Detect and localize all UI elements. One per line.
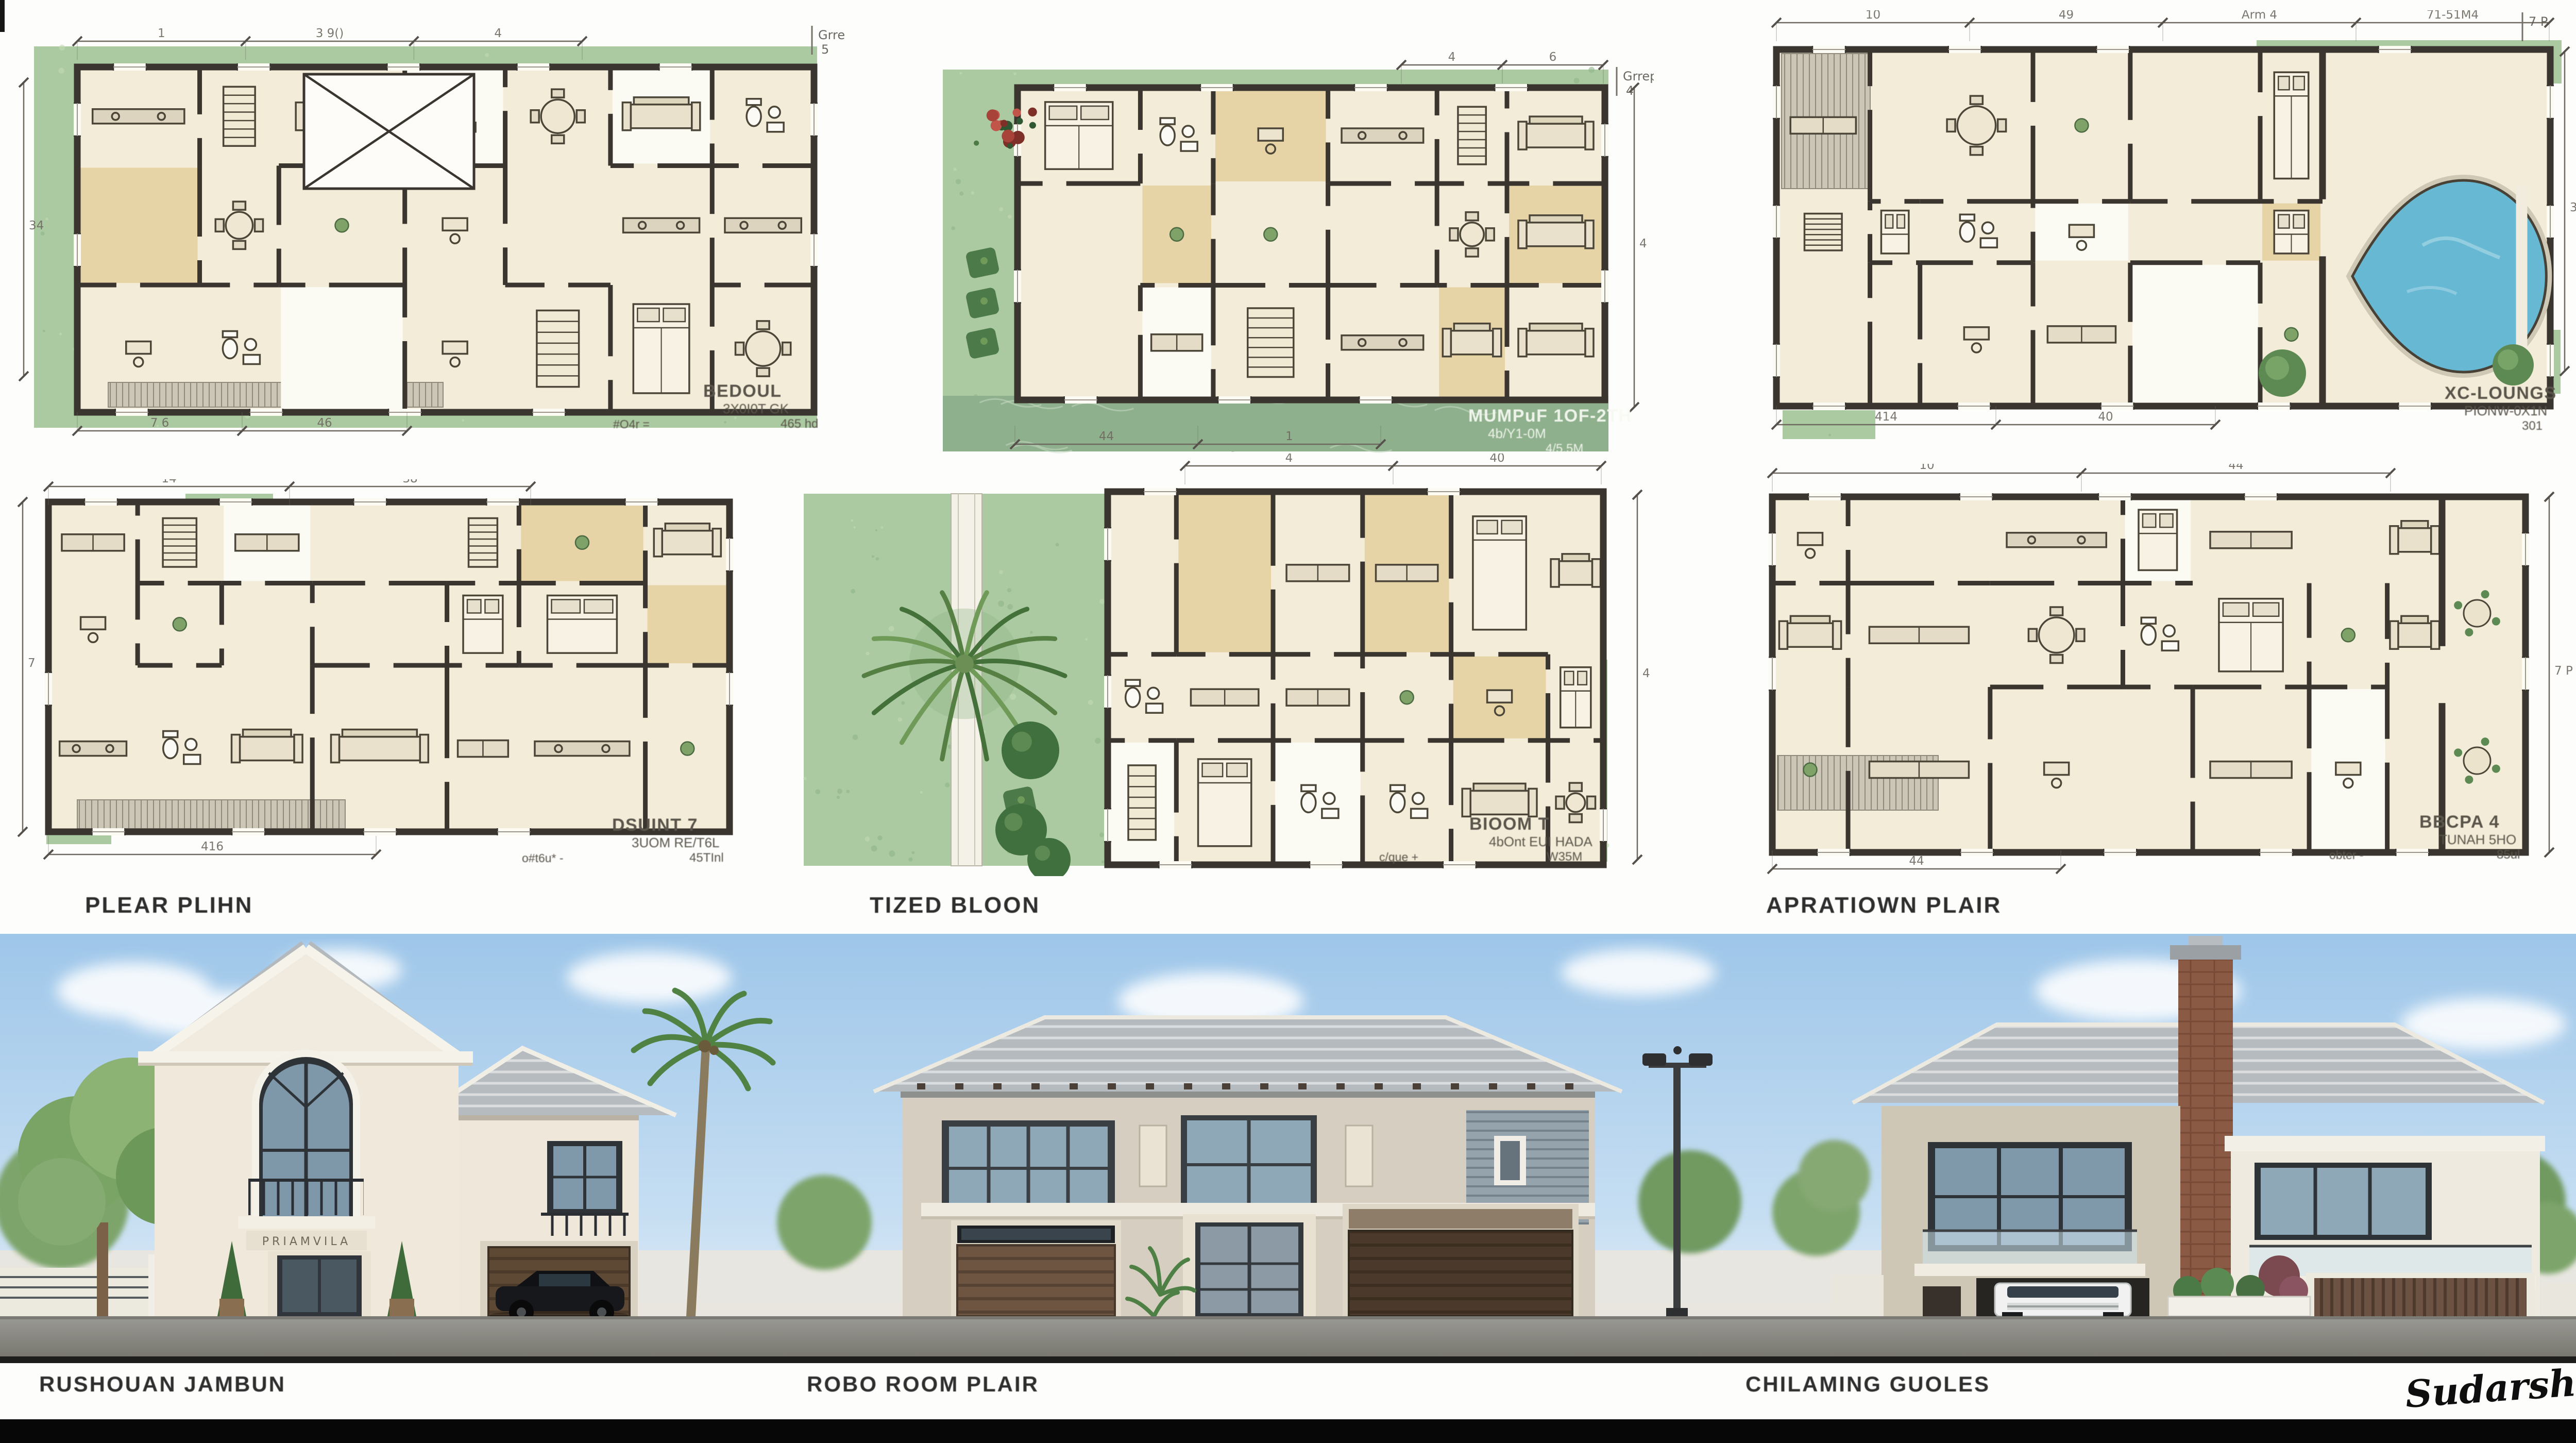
label-elevation-middle: ROBO ROOM PLAIR [807,1372,1039,1397]
window-middle-center [1181,1115,1317,1214]
floor-plan-5: 4404BIOOM T4bOnt EUI HADAW35Mc/que + [788,454,1654,876]
tiny-dim-label: Arm 4 [2242,10,2277,22]
tiny-dim-label: 34 [29,219,44,232]
garage-middle-right [1343,1204,1579,1316]
window-middle-left [942,1120,1115,1216]
garage-right-house [2306,1273,2535,1316]
tiny-dim-label: 40 [1489,454,1504,465]
tiny-dim-label: 7 P [2554,664,2573,678]
tiny-dim-label: 4 [1448,52,1456,64]
tiny-dim-label: 46 [317,416,332,430]
tiny-dim-label: 44 [2228,464,2243,472]
tiny-dim-label: 4 [1642,667,1650,680]
tiny-dim-label: 4 [1626,83,1634,98]
tiny-dim-label: 44 [1099,430,1114,443]
entry-sign: PRIAMVILA [246,1231,367,1250]
entry-door [268,1251,371,1316]
house-middle [874,1017,1622,1316]
floor-plan-4: 14384167DSUINT 73UOM RE/T6L45TInlo#t6u* … [15,479,747,876]
floor-plan-drawing-2: 464414Grrep4 [938,52,1654,464]
elevation-strip: PRIAMVILA [0,934,2576,1363]
floor-plan-6: 1044447 PBBCPA 4TUNAH 5HO85ulobter - [1752,464,2576,876]
balcony [238,1180,375,1229]
tiny-dim-label: 3 9() [316,27,344,40]
tiny-dim-label: 4 [1639,237,1647,250]
board-edge-mark [0,0,5,32]
tiny-dim-label: 4 [1285,454,1293,465]
label-floor-plan-middle: TIZED BLOON [870,893,1040,918]
chimney [2170,936,2241,1316]
tiny-dim-label: 6 [1549,52,1557,64]
floor-plan-drawing-1: 13 9()47 64634Grrep5 [15,21,845,448]
tiny-dim-label: 414 [1875,410,1897,424]
tiny-dim-label: Grrep [1623,69,1654,83]
tiny-dim-label: 10 [1919,464,1934,472]
floor-plan-drawing-4: 14384167 [15,479,747,876]
floor-plan-1: 13 9()47 64634Grrep5BEDOUL3X0I0T GK465 h… [15,21,845,448]
tiny-dim-label: 7 6 [150,416,170,430]
bottom-black-bar [0,1419,2576,1443]
wing-window [541,1141,629,1236]
tiny-dim-label: 10 [1866,10,1880,22]
tiny-dim-label: 44 [1909,854,1924,868]
floor-plan-drawing-3: 1049Arm 471-51M441440307 P [1752,10,2576,454]
label-floor-plan-left: PLEAR PLIHN [85,893,253,918]
tiny-dim-label: 7 P [2529,14,2548,29]
floor-plan-drawing-6: 1044447 P [1752,464,2576,876]
tiny-dim-label: 416 [201,840,224,853]
tiny-dim-label: Grrep [818,28,845,42]
tiny-dim-label: 14 [161,479,176,485]
window-right-unit [2255,1163,2432,1240]
floor-plan-2: 464414Grrep4MUMPuF 1OF-2TH4b/Y1-0M4/5.5M [938,52,1654,464]
tiny-dim-label: 30 [2570,201,2576,214]
carport-suv [1976,1278,2149,1316]
garage-middle-left [951,1220,1121,1316]
street-dark-strip [0,1356,2576,1363]
tiny-dim-label: 49 [2059,10,2074,22]
label-elevation-right: CHILAMING GUOLES [1745,1372,1990,1397]
tiny-dim-label: 4 [494,27,502,40]
tiny-dim-label: 5 [821,42,829,57]
floor-plan-drawing-5: 4404 [788,454,1654,876]
label-elevation-left: RUSHOUAN JAMBUN [39,1372,286,1397]
street [0,1316,2576,1363]
tiny-dim-label: 7 [28,657,36,670]
entry-middle [1183,1214,1316,1316]
balcony-right-left-unit [1914,1231,2145,1276]
fence-left [0,1268,155,1316]
tiny-dim-label: 38 [402,479,417,485]
tiny-dim-label: 1 [158,27,165,40]
floor-plan-3: 1049Arm 471-51M441440307 PXC-LOUNGSPIONW… [1752,10,2576,454]
tiny-dim-label: 40 [2098,410,2113,424]
tiny-dim-label: 1 [1285,430,1293,443]
tiny-dim-label: 71-51M4 [2427,10,2479,22]
label-floor-plan-right: APRATIOWN PLAIR [1766,893,2002,918]
presentation-board: 13 9()47 64634Grrep5BEDOUL3X0I0T GK465 h… [0,0,2576,1443]
house-sign-text: PRIAMVILA [262,1235,351,1248]
